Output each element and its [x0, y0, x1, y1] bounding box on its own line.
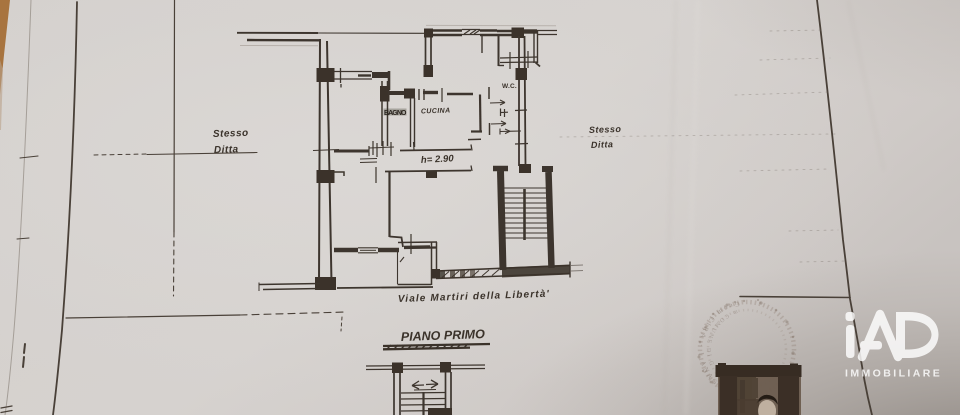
svg-text:Stesso: Stesso	[213, 128, 249, 140]
svg-text:PIANO PRIMO: PIANO PRIMO	[401, 327, 486, 344]
svg-text:Stesso: Stesso	[589, 124, 622, 135]
svg-text:h= 2.90: h= 2.90	[421, 153, 455, 166]
svg-text:IMMOBILIARE: IMMOBILIARE	[845, 368, 941, 380]
svg-text:Ditta: Ditta	[591, 139, 614, 150]
svg-text:W.C.: W.C.	[502, 83, 517, 90]
svg-text:CUCINA: CUCINA	[421, 107, 451, 115]
svg-text:Ditta: Ditta	[214, 144, 239, 156]
